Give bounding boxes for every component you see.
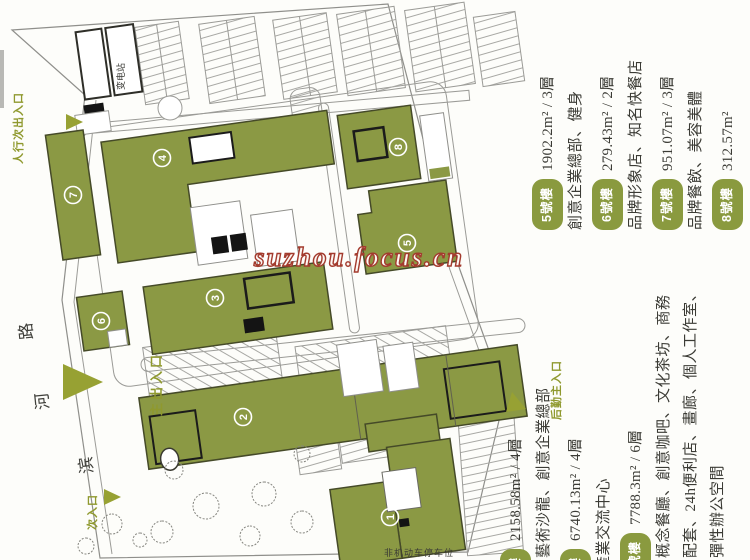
building-spec: 6740.13m² / 4層 bbox=[568, 438, 584, 541]
building-8-footprint bbox=[337, 105, 421, 189]
building-uses: 概念餐廳、創意咖吧、文化茶坊、商務配套、24h便利店、畫廊、個人工作室、彈性辦公… bbox=[651, 284, 732, 558]
low-rise-block bbox=[337, 339, 384, 396]
legend-left-column: 1號樓2158.58m² / 4層 藝術沙龍、創意企業總部 4號樓6740.13… bbox=[500, 284, 734, 558]
svg-text:1: 1 bbox=[385, 514, 397, 520]
low-rise-block bbox=[190, 201, 248, 265]
svg-text:8: 8 bbox=[393, 144, 405, 150]
secondary-entrance-label: 次入口 bbox=[84, 494, 100, 530]
low-rise-block bbox=[383, 342, 419, 392]
building-spec: 279.43m² / 2層 bbox=[600, 76, 616, 171]
building-badge: 4號樓 bbox=[560, 549, 591, 560]
scanned-site-plan-page: 1 2 3 4 5 6 7 8 滨 河 路 主出入口 次入口 人行次出入口 后勤… bbox=[0, 0, 750, 560]
building-badge: 7號樓 bbox=[652, 179, 683, 230]
building-spec: 7788.3m² / 6層 bbox=[628, 430, 644, 525]
building-uses: 創意企業總部、健身 bbox=[563, 0, 590, 230]
pedestrian-entrance-label: 人行次出入口 bbox=[10, 92, 26, 164]
parking-lot bbox=[199, 16, 266, 103]
building-uses: 品牌餐飲、美容美體 bbox=[683, 0, 710, 230]
legend-entry: 2號樓7788.3m² / 6層 概念餐廳、創意咖吧、文化茶坊、商務配套、24h… bbox=[620, 284, 732, 558]
building-spec: 1902.2m² / 3層 bbox=[540, 76, 556, 171]
legend-entry: 5號樓1902.2m² / 3層 創意企業總部、健身 bbox=[532, 0, 590, 230]
legend-entry: 8號樓312.57m² 小型會所、酒吧、創意企業總部 bbox=[712, 0, 750, 230]
building-uses: 藝術沙龍、創意企業總部 bbox=[531, 284, 558, 558]
svg-text:3: 3 bbox=[210, 295, 222, 301]
parking-lot bbox=[405, 2, 476, 92]
building-uses: 產業交流中心 bbox=[591, 284, 618, 560]
site-plan-drawing: 1 2 3 4 5 6 7 8 bbox=[0, 0, 530, 560]
site-watermark: suzhou.focus.cn bbox=[254, 242, 514, 273]
building-spec: 2158.58m² / 4層 bbox=[508, 438, 524, 541]
road-name-char: 河 bbox=[27, 392, 54, 412]
building-badge: 2號樓 bbox=[620, 533, 651, 560]
legend-entry: 7號樓951.07m² / 3層 品牌餐飲、美容美體 bbox=[652, 0, 710, 230]
building-uses: 品牌形象店、知名快餐店 bbox=[623, 0, 650, 230]
road-name-char: 路 bbox=[11, 322, 38, 342]
svg-text:7: 7 bbox=[68, 192, 80, 198]
building-spec: 951.07m² / 3層 bbox=[660, 76, 676, 171]
legend-entry: 1號樓2158.58m² / 4層 藝術沙龍、創意企業總部 bbox=[500, 284, 558, 558]
building-badge: 1號樓 bbox=[500, 549, 531, 560]
scan-edge-artifact bbox=[0, 50, 4, 108]
parking-lot bbox=[473, 11, 524, 86]
bike-parking-label: 非机动车停车位 bbox=[384, 546, 454, 559]
main-entrance-label: 主出入口 bbox=[146, 352, 165, 416]
building-badge: 6號樓 bbox=[592, 179, 623, 230]
building-spec: 312.57m² bbox=[720, 111, 736, 171]
turnaround bbox=[158, 96, 182, 120]
substation-label: 变电站 bbox=[114, 63, 127, 90]
building-badge: 8號樓 bbox=[712, 179, 743, 230]
rotated-sheet: 1 2 3 4 5 6 7 8 滨 河 路 主出入口 次入口 人行次出入口 后勤… bbox=[0, 0, 750, 560]
legend-entry: 6號樓279.43m² / 2層 品牌形象店、知名快餐店 bbox=[592, 0, 650, 230]
building-badge: 5號樓 bbox=[532, 179, 563, 230]
svg-text:6: 6 bbox=[96, 318, 108, 324]
road-name-char: 滨 bbox=[71, 456, 98, 476]
svg-text:2: 2 bbox=[238, 414, 250, 420]
legend-entry: 4號樓6740.13m² / 4層 產業交流中心 bbox=[560, 284, 618, 558]
svg-text:4: 4 bbox=[157, 154, 169, 161]
parking-lot bbox=[337, 6, 406, 95]
legend-right-column: 5號樓1902.2m² / 3層 創意企業總部、健身 6號樓279.43m² /… bbox=[532, 0, 750, 230]
parking-lot bbox=[273, 13, 338, 100]
courtyard-feature bbox=[243, 317, 265, 334]
